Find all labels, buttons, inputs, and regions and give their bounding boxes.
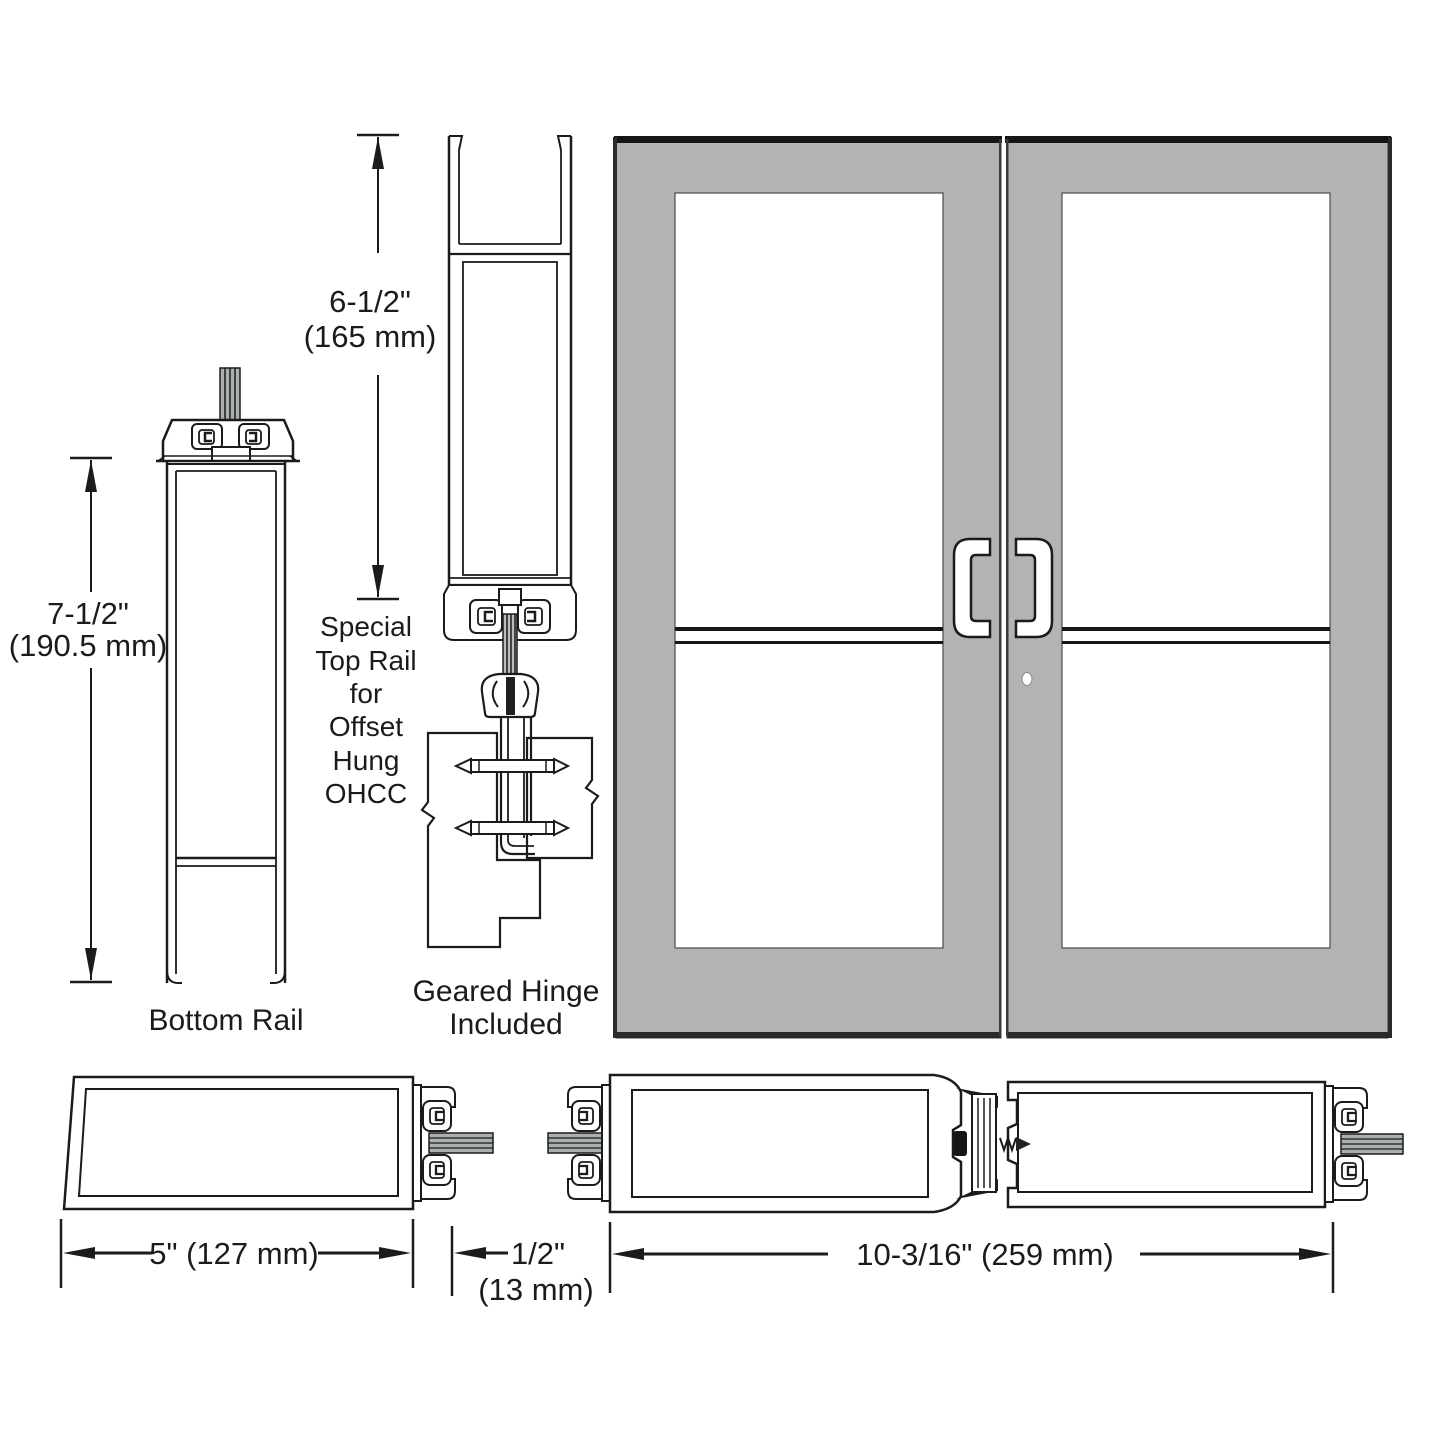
right-door-bottom-edge	[1007, 1032, 1388, 1038]
right-door-glass	[1062, 193, 1330, 948]
diagram-page: Bottom Rail 7-1/2" (190.5 mm)	[0, 0, 1445, 1445]
dim-stile-width: 5" (127 mm)	[149, 1236, 319, 1271]
geared-hinge-label-2: Included	[449, 1008, 562, 1041]
left-door-top-edge	[614, 136, 1002, 143]
label-line-for: for	[350, 678, 383, 709]
dimension-stile-width: 5" (127 mm)	[61, 1219, 413, 1288]
label-line-ohcc: OHCC	[325, 778, 407, 809]
dimension-gap-width: 1/2" (13 mm)	[452, 1226, 594, 1307]
lock-cylinder	[1022, 673, 1032, 686]
dim-top-rail-in: 6-1/2"	[329, 284, 411, 319]
special-top-rail-label: Special Top Rail for Offset Hung OHCC	[315, 611, 416, 809]
left-door-midrail-top-line	[675, 627, 943, 631]
right-door-outer-edge	[1388, 137, 1392, 1038]
hinge-screw-top	[456, 759, 568, 773]
right-door-midrail-top-line	[1062, 627, 1330, 631]
right-leaf-stile-plan	[1008, 1082, 1325, 1207]
bottom-rail-label: Bottom Rail	[148, 1004, 303, 1037]
dim-bottom-rail-mm: (190.5 mm)	[9, 628, 167, 663]
left-door-bottom-edge	[616, 1032, 1001, 1038]
geared-hinge-figure: Geared Hinge Included	[413, 614, 600, 1041]
label-line-top-rail: Top Rail	[315, 645, 416, 676]
geared-hinge-label-1: Geared Hinge	[413, 975, 600, 1008]
left-leaf-stile-plan	[610, 1075, 961, 1212]
top-rail-cross-section	[444, 136, 576, 640]
hinge-right-plate	[527, 738, 598, 858]
dimension-pair-width: 10-3/16" (259 mm)	[610, 1222, 1333, 1293]
label-line-special: Special	[320, 611, 412, 642]
bottom-rail-cross-section: Bottom Rail	[148, 368, 303, 1037]
door-diagram-canvas: Bottom Rail 7-1/2" (190.5 mm)	[0, 0, 1445, 1445]
dim-bottom-rail-in: 7-1/2"	[47, 596, 129, 631]
dim-gap-mm: (13 mm)	[478, 1272, 593, 1307]
dimension-bottom-rail-height: 7-1/2" (190.5 mm)	[9, 458, 167, 982]
right-door-midrail-bottom-line	[1062, 641, 1330, 644]
dim-top-rail-mm: (165 mm)	[304, 319, 437, 354]
left-door-outer-edge	[613, 137, 617, 1038]
left-door-glass	[675, 193, 943, 948]
stile-plan-section	[64, 1077, 493, 1209]
hinged-pair-plan-section	[548, 1075, 1403, 1212]
meeting-gasket	[953, 1131, 967, 1156]
dim-gap-in: 1/2"	[511, 1236, 565, 1271]
label-line-hung: Hung	[333, 745, 400, 776]
setting-block	[212, 447, 250, 461]
double-doors-elevation	[613, 136, 1392, 1038]
left-door-midrail-bottom-line	[675, 641, 943, 644]
right-door-top-edge	[1005, 136, 1391, 143]
dimension-top-rail-height: 6-1/2" (165 mm)	[304, 135, 437, 599]
label-line-offset: Offset	[329, 711, 403, 742]
hinge-screw-bottom	[456, 821, 568, 835]
dim-pair-width: 10-3/16" (259 mm)	[856, 1237, 1113, 1272]
